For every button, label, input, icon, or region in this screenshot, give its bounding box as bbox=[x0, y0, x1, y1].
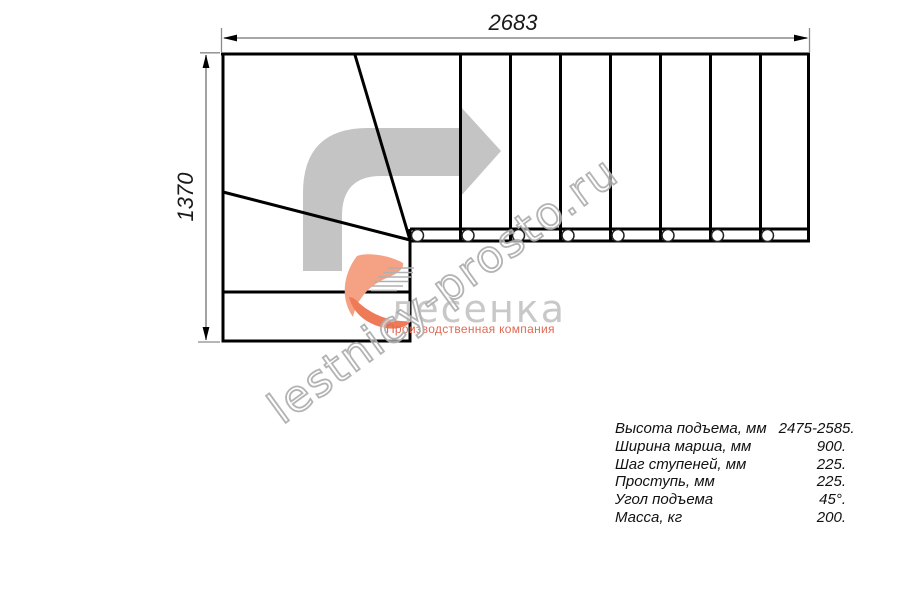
dimension-arrow-right bbox=[794, 35, 809, 42]
spec-value: 225. bbox=[817, 473, 846, 491]
baluster bbox=[712, 230, 724, 242]
spec-value: 900. bbox=[817, 438, 846, 456]
spec-label: Высота подъема, мм bbox=[615, 420, 767, 438]
spec-value: 45°. bbox=[819, 491, 846, 509]
spec-label: Проступь, мм bbox=[615, 473, 715, 491]
spec-value: 225. bbox=[817, 456, 846, 474]
baluster bbox=[762, 230, 774, 242]
specs-table: Высота подъема, мм 2475-2585. Ширина мар… bbox=[615, 420, 846, 527]
dimension-top: 2683 bbox=[222, 10, 810, 52]
dimension-width-label: 2683 bbox=[488, 10, 539, 35]
spec-row-height: Высота подъема, мм 2475-2585. bbox=[615, 420, 846, 438]
baluster bbox=[662, 230, 674, 242]
dimension-arrow-up bbox=[203, 55, 210, 69]
dimension-height-label: 1370 bbox=[173, 172, 198, 222]
dimension-arrow-down bbox=[203, 327, 210, 341]
spec-row-tread: Проступь, мм 225. bbox=[615, 473, 846, 491]
spec-label: Ширина марша, мм bbox=[615, 438, 751, 456]
spec-value: 200. bbox=[817, 509, 846, 527]
dimension-left: 1370 bbox=[173, 53, 220, 342]
dimension-arrow-left bbox=[223, 35, 237, 42]
stair-drawing-page: 2683 1370 лесенка Производственна bbox=[0, 0, 900, 600]
spec-label: Шаг ступеней, мм bbox=[615, 456, 746, 474]
baluster bbox=[412, 230, 424, 242]
spec-row-width: Ширина марша, мм 900. bbox=[615, 438, 846, 456]
spec-row-angle: Угол подъема 45°. bbox=[615, 491, 846, 509]
spec-row-step: Шаг ступеней, мм 225. bbox=[615, 456, 846, 474]
spec-row-mass: Масса, кг 200. bbox=[615, 509, 846, 527]
spec-value: 2475-2585. bbox=[779, 420, 855, 438]
spec-label: Угол подъема bbox=[615, 491, 713, 509]
spec-label: Масса, кг bbox=[615, 509, 682, 527]
baluster bbox=[612, 230, 624, 242]
